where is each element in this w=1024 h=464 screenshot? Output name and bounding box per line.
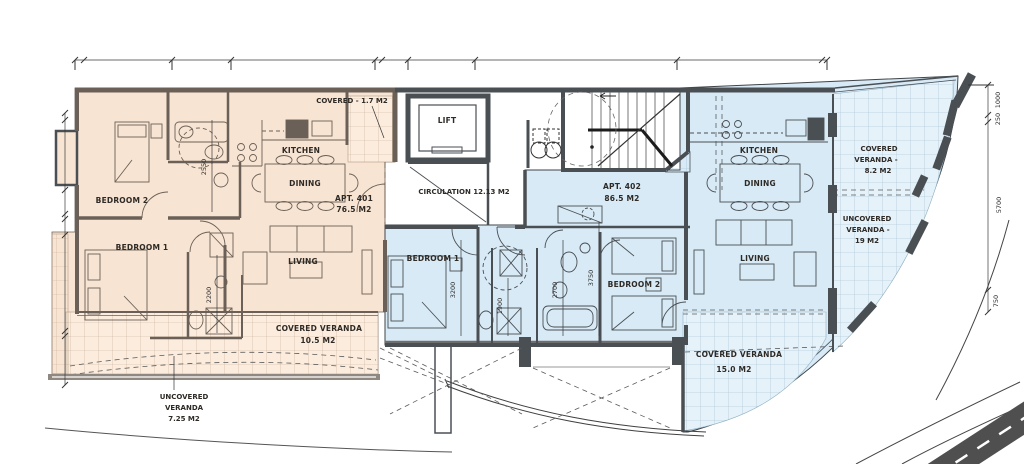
label-uncovered-veranda-402-2: VERANDA - [846, 226, 890, 234]
label-kitchen-401: KITCHEN [282, 146, 320, 155]
label-apt402-area: 86.5 M2 [604, 194, 639, 203]
dim-750: 750 [992, 295, 1000, 307]
label-covered-veranda-401: COVERED VERANDA [276, 324, 362, 333]
dim-2200: 2200 [205, 287, 213, 304]
label-covered-veranda-401-area: 10.5 M2 [300, 336, 335, 345]
label-kitchen-402: KITCHEN [740, 146, 778, 155]
label-dining-401: DINING [289, 179, 321, 188]
stair-direction-arrow [600, 93, 616, 99]
label-dining-402: DINING [744, 179, 776, 188]
dim-1000: 1000 [994, 92, 1002, 109]
label-apt402-id: APT. 402 [603, 182, 641, 191]
label-living-401: LIVING [288, 257, 318, 266]
dim-3750: 3750 [587, 270, 595, 287]
label-uncovered-veranda-402-1: UNCOVERED [843, 215, 892, 223]
label-bedroom1-401: BEDROOM 1 [116, 243, 169, 252]
label-covered-1-7: COVERED - 1.7 M2 [316, 97, 388, 105]
label-bedroom1-402: BEDROOM 1 [407, 254, 460, 263]
label-circulation: CIRCULATION 12.13 M2 [418, 188, 509, 196]
floor-plan: COVERED - 1.7 M2 KITCHEN DINING APT. 401… [0, 0, 1024, 464]
floor-plan-drawing: COVERED - 1.7 M2 KITCHEN DINING APT. 401… [0, 0, 1024, 464]
lower-slab-area [380, 337, 706, 436]
dim-5700: 5700 [995, 197, 1003, 214]
label-covered-veranda-right-1: COVERED [860, 145, 897, 153]
dim-1900: 1900 [496, 298, 504, 315]
bay-window [56, 131, 77, 185]
label-uncovered-veranda-402-3: 19 M2 [855, 237, 879, 245]
label-uncovered-veranda-401-1: UNCOVERED [160, 393, 209, 401]
stairs [548, 92, 680, 168]
label-uncovered-veranda-401-3: 7.25 M2 [168, 415, 200, 423]
label-covered-veranda-bottom-2: 15.0 M2 [716, 365, 751, 374]
dim-2550: 2550 [200, 159, 208, 176]
dim-3200: 3200 [449, 282, 457, 299]
label-covered-veranda-right-2: VERANDA - [854, 156, 898, 164]
label-bedroom2-401: BEDROOM 2 [96, 196, 149, 205]
label-apt401-area: 76.5 M2 [336, 205, 371, 214]
label-covered-veranda-right-3: 8.2 M2 [865, 167, 892, 175]
label-lift: LIFT [438, 116, 457, 125]
label-uncovered-veranda-401-2: VERANDA [165, 404, 204, 412]
dim-250: 250 [994, 113, 1002, 125]
label-apt401-id: APT. 401 [335, 194, 373, 203]
road [918, 372, 1024, 464]
dim-2700: 2700 [551, 282, 559, 299]
label-bedroom2-402: BEDROOM 2 [608, 280, 661, 289]
label-living-402: LIVING [740, 254, 770, 263]
label-covered-veranda-bottom-1: COVERED VERANDA [696, 350, 782, 359]
